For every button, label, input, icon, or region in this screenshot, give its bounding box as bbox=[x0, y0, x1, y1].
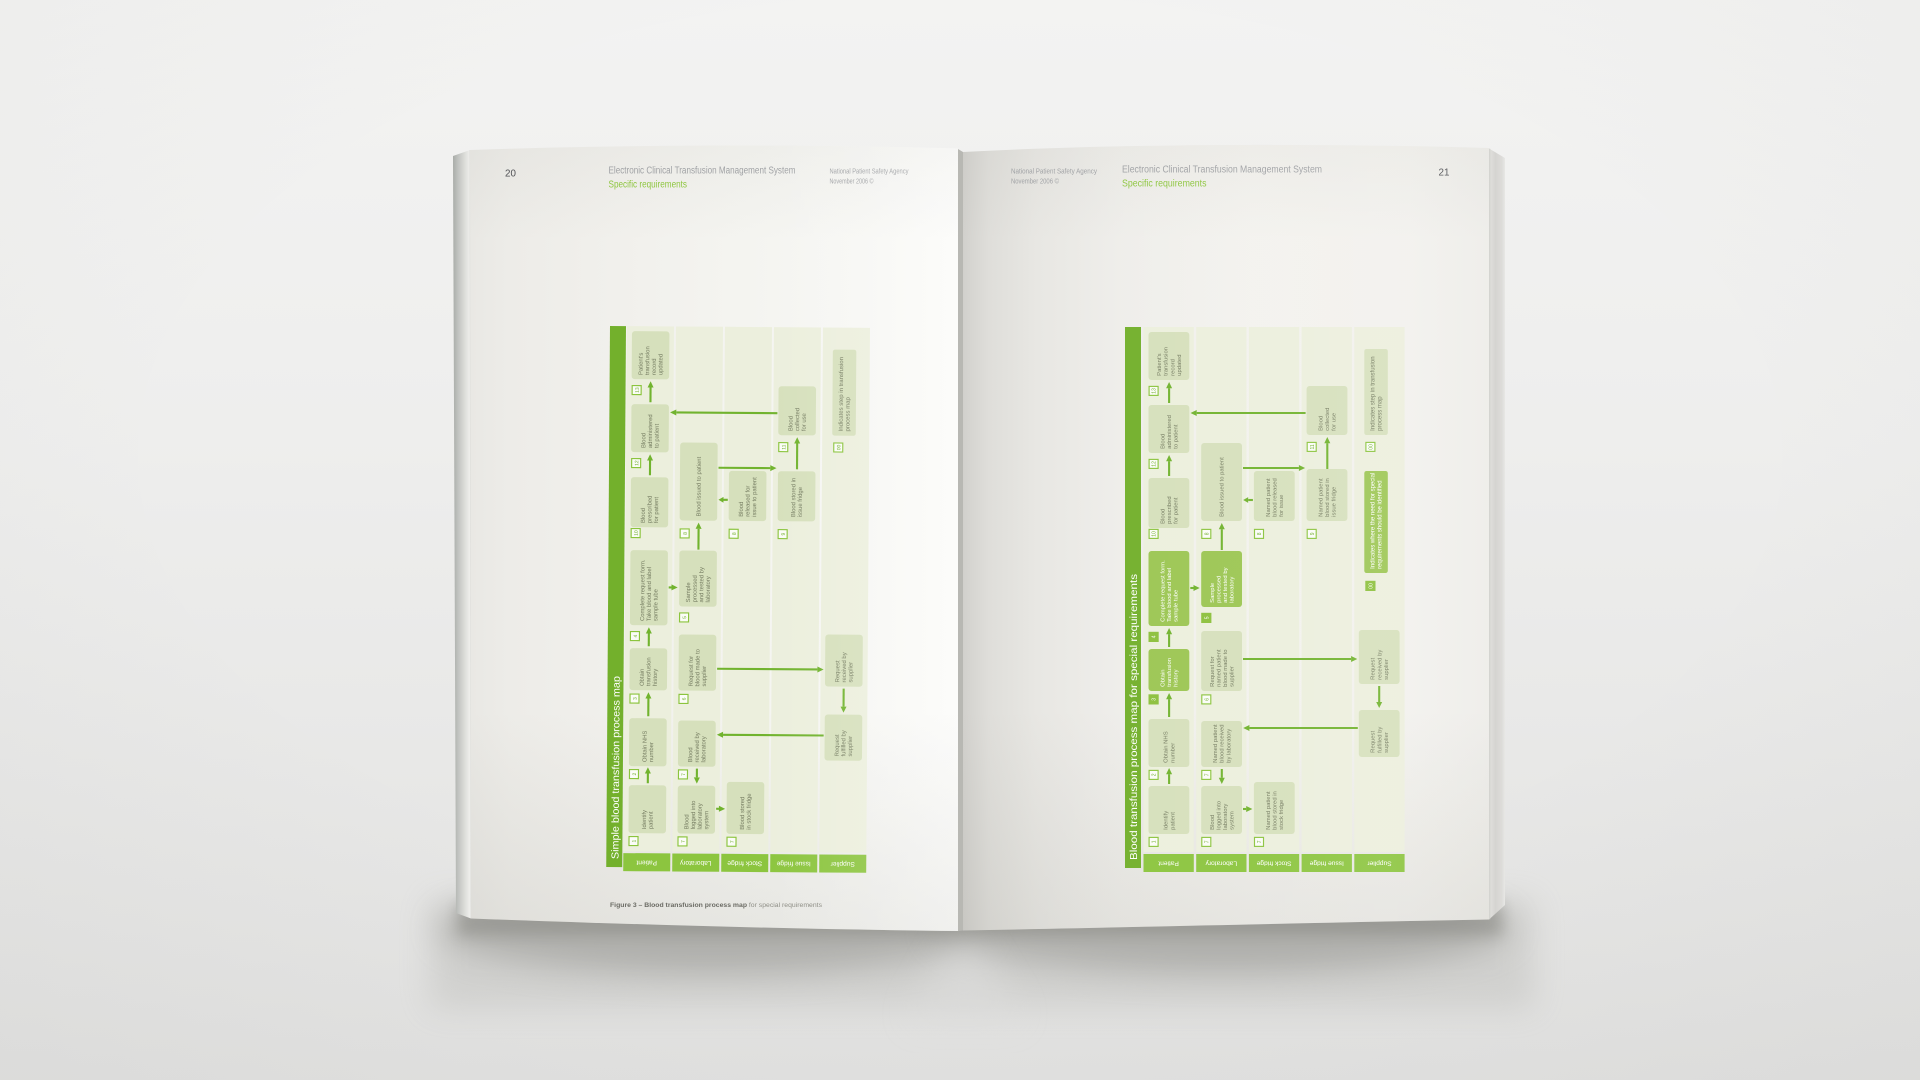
svg-text:Figure 3 – Blood transfusion p: Figure 3 – Blood transfusion process map… bbox=[610, 902, 823, 909]
